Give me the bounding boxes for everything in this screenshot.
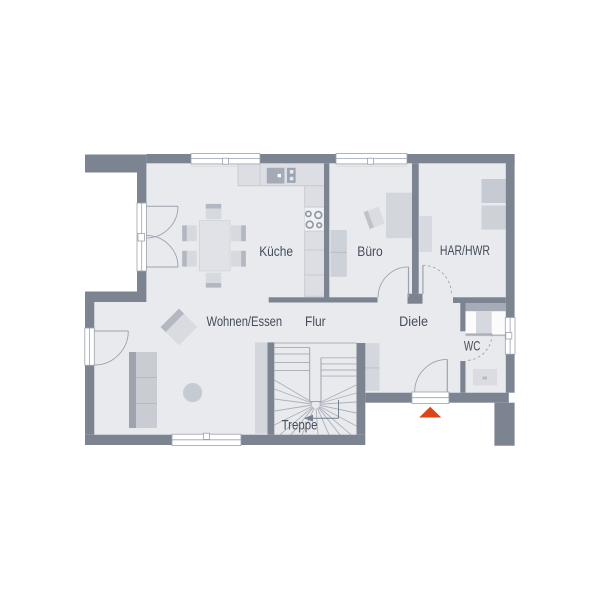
svg-text:HAR/HWR: HAR/HWR <box>440 242 490 258</box>
svg-text:Flur: Flur <box>305 313 326 329</box>
svg-text:Küche: Küche <box>259 243 293 259</box>
svg-text:Wohnen/Essen: Wohnen/Essen <box>207 313 283 329</box>
svg-text:Diele: Diele <box>399 313 428 329</box>
svg-text:Treppe: Treppe <box>282 417 318 433</box>
svg-text:WC: WC <box>464 338 481 354</box>
svg-text:Büro: Büro <box>357 243 383 259</box>
